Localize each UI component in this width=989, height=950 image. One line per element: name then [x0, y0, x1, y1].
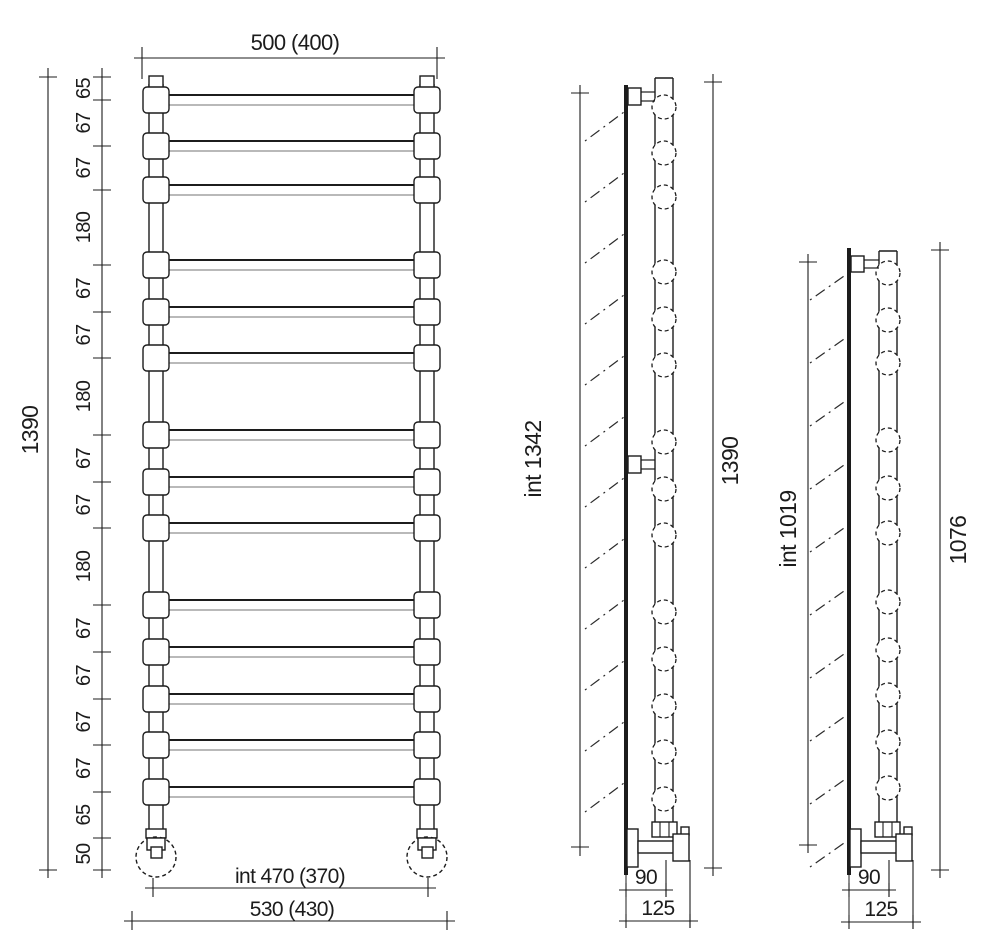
wall-hatch-line — [585, 539, 624, 568]
rung-connector-block — [414, 299, 440, 325]
rung-cross-section — [876, 476, 900, 500]
rung-connector-block — [414, 133, 440, 159]
rung-cross-section — [652, 523, 676, 547]
rung-cross-section — [652, 185, 676, 209]
valve-pipe — [638, 841, 675, 853]
wall-hatch-line — [585, 356, 624, 385]
rung-connector-block — [143, 515, 169, 541]
wall-hatch-line — [810, 652, 847, 678]
segment-dimension-label: 67 — [73, 665, 95, 687]
wall-hatch-line — [810, 463, 847, 489]
towel-radiator-dimension-drawing: 65676718067671806767180676767676550 500 … — [0, 0, 989, 950]
side-tall-internal-height-label: int 1342 — [520, 420, 546, 497]
rung-connector-block — [414, 177, 440, 203]
wall-hatch-line — [585, 478, 624, 507]
wall-hatch-line — [810, 526, 847, 552]
wall-hatch-line — [585, 783, 624, 812]
rung-connector-block — [143, 299, 169, 325]
rung-connector-block — [143, 177, 169, 203]
rung-cross-section — [652, 477, 676, 501]
rung-cross-section — [652, 430, 676, 454]
wall-hatch-line — [585, 295, 624, 324]
valve-square — [422, 847, 433, 858]
rung-cross-section — [876, 638, 900, 662]
rung-cross-section — [876, 776, 900, 800]
rung-cross-section — [876, 683, 900, 707]
rung-connector-block — [143, 345, 169, 371]
rung-connector-block — [414, 87, 440, 113]
rung-cross-section — [652, 95, 676, 119]
rung-cross-section — [876, 351, 900, 375]
wall-hatch-line — [585, 600, 624, 629]
segment-dimension-label: 67 — [73, 448, 95, 470]
rung-connector-block — [414, 345, 440, 371]
rung-connector-block — [414, 639, 440, 665]
segment-dimension-label: 65 — [73, 804, 95, 826]
rung-cross-section — [876, 308, 900, 332]
wall-bracket — [628, 456, 641, 473]
rung-connector-block — [143, 592, 169, 618]
side-short-wall-distance-label: 90 — [858, 866, 880, 889]
front-total-height-label: 1390 — [17, 406, 43, 455]
segment-dimension-label: 67 — [73, 112, 95, 134]
rung-connector-block — [143, 469, 169, 495]
segment-dimension-label: 180 — [73, 550, 95, 582]
rung-connector-block — [143, 779, 169, 805]
wall-hatch-line — [810, 715, 847, 741]
rung-connector-block — [143, 686, 169, 712]
rung-connector-block — [414, 252, 440, 278]
front-view-structure — [136, 76, 447, 877]
rung-connector-block — [414, 469, 440, 495]
wall-hatch-line — [585, 234, 624, 263]
valve-body — [896, 834, 912, 861]
rung-connector-block — [143, 422, 169, 448]
rung-cross-section — [652, 740, 676, 764]
wall-hatch-line — [585, 661, 624, 690]
rung-cross-section — [876, 428, 900, 452]
side-view-short-structure — [810, 248, 912, 928]
rung-cross-section — [876, 521, 900, 545]
drawing-canvas: 65676718067671806767180676767676550 500 … — [0, 0, 989, 950]
rung-cross-section — [652, 647, 676, 671]
rung-connector-block — [414, 686, 440, 712]
rung-connector-block — [143, 639, 169, 665]
wall-hatch-line — [585, 173, 624, 202]
wall-hatch-line — [585, 112, 624, 141]
side-tall-wall-distance-label: 90 — [635, 866, 657, 889]
segment-dimension-label: 65 — [73, 78, 95, 100]
rung-cross-section — [652, 600, 676, 624]
side-tall-total-height-label: 1390 — [717, 437, 743, 486]
rung-connector-block — [143, 732, 169, 758]
side-view-tall-structure — [585, 78, 689, 927]
side-short-depth-label: 125 — [864, 898, 897, 921]
rung-cross-section — [652, 260, 676, 284]
rung-cross-section — [652, 307, 676, 331]
rung-connector-block — [143, 87, 169, 113]
segment-dimension-label: 67 — [73, 324, 95, 346]
wall-hatch-line — [810, 589, 847, 615]
wall-hatch-line — [810, 274, 847, 300]
rung-connector-block — [414, 422, 440, 448]
rung-connector-block — [414, 592, 440, 618]
segment-dimension-label: 67 — [73, 494, 95, 516]
rung-connector-block — [414, 515, 440, 541]
wall-hatch-line — [810, 400, 847, 426]
wall-hatch-line — [585, 417, 624, 446]
side-short-internal-height-label: int 1019 — [775, 490, 801, 567]
front-width-label: 500 (400) — [251, 30, 340, 55]
wall-bracket — [851, 256, 864, 272]
rung-cross-section — [652, 141, 676, 165]
rung-connector-block — [143, 252, 169, 278]
segment-dimension-label: 180 — [73, 380, 95, 412]
rung-cross-section — [652, 787, 676, 811]
front-inner-width-label: int 470 (370) — [235, 865, 345, 888]
rung-cross-section — [876, 730, 900, 754]
wall-hatch-line — [810, 778, 847, 804]
rung-connector-block — [414, 779, 440, 805]
segment-dimension-label: 67 — [73, 758, 95, 780]
wall-bracket — [628, 88, 641, 105]
rung-cross-section — [876, 261, 900, 285]
valve-pipe — [861, 841, 898, 853]
valve-body — [673, 834, 689, 861]
side-short-total-height-label: 1076 — [945, 516, 971, 565]
rung-cross-section — [876, 590, 900, 614]
side-view-short-dimensions — [799, 242, 949, 929]
wall-mount-plate — [627, 829, 638, 867]
segment-dimension-label: 180 — [73, 211, 95, 243]
segment-dimension-label: 67 — [73, 157, 95, 179]
wall-mount-plate — [850, 829, 861, 867]
wall-hatch-line — [585, 722, 624, 751]
valve-square — [151, 847, 162, 858]
segment-dimension-label: 50 — [73, 843, 95, 865]
rung-connector-block — [414, 732, 440, 758]
rung-connector-block — [143, 133, 169, 159]
front-outer-width-label: 530 (430) — [250, 898, 335, 921]
segment-dimension-label: 67 — [73, 278, 95, 300]
segment-dimension-label: 67 — [73, 618, 95, 640]
wall-hatch-line — [810, 337, 847, 363]
side-tall-depth-label: 125 — [641, 897, 674, 920]
rung-cross-section — [652, 353, 676, 377]
segment-dimension-label: 67 — [73, 711, 95, 733]
rung-cross-section — [652, 694, 676, 718]
